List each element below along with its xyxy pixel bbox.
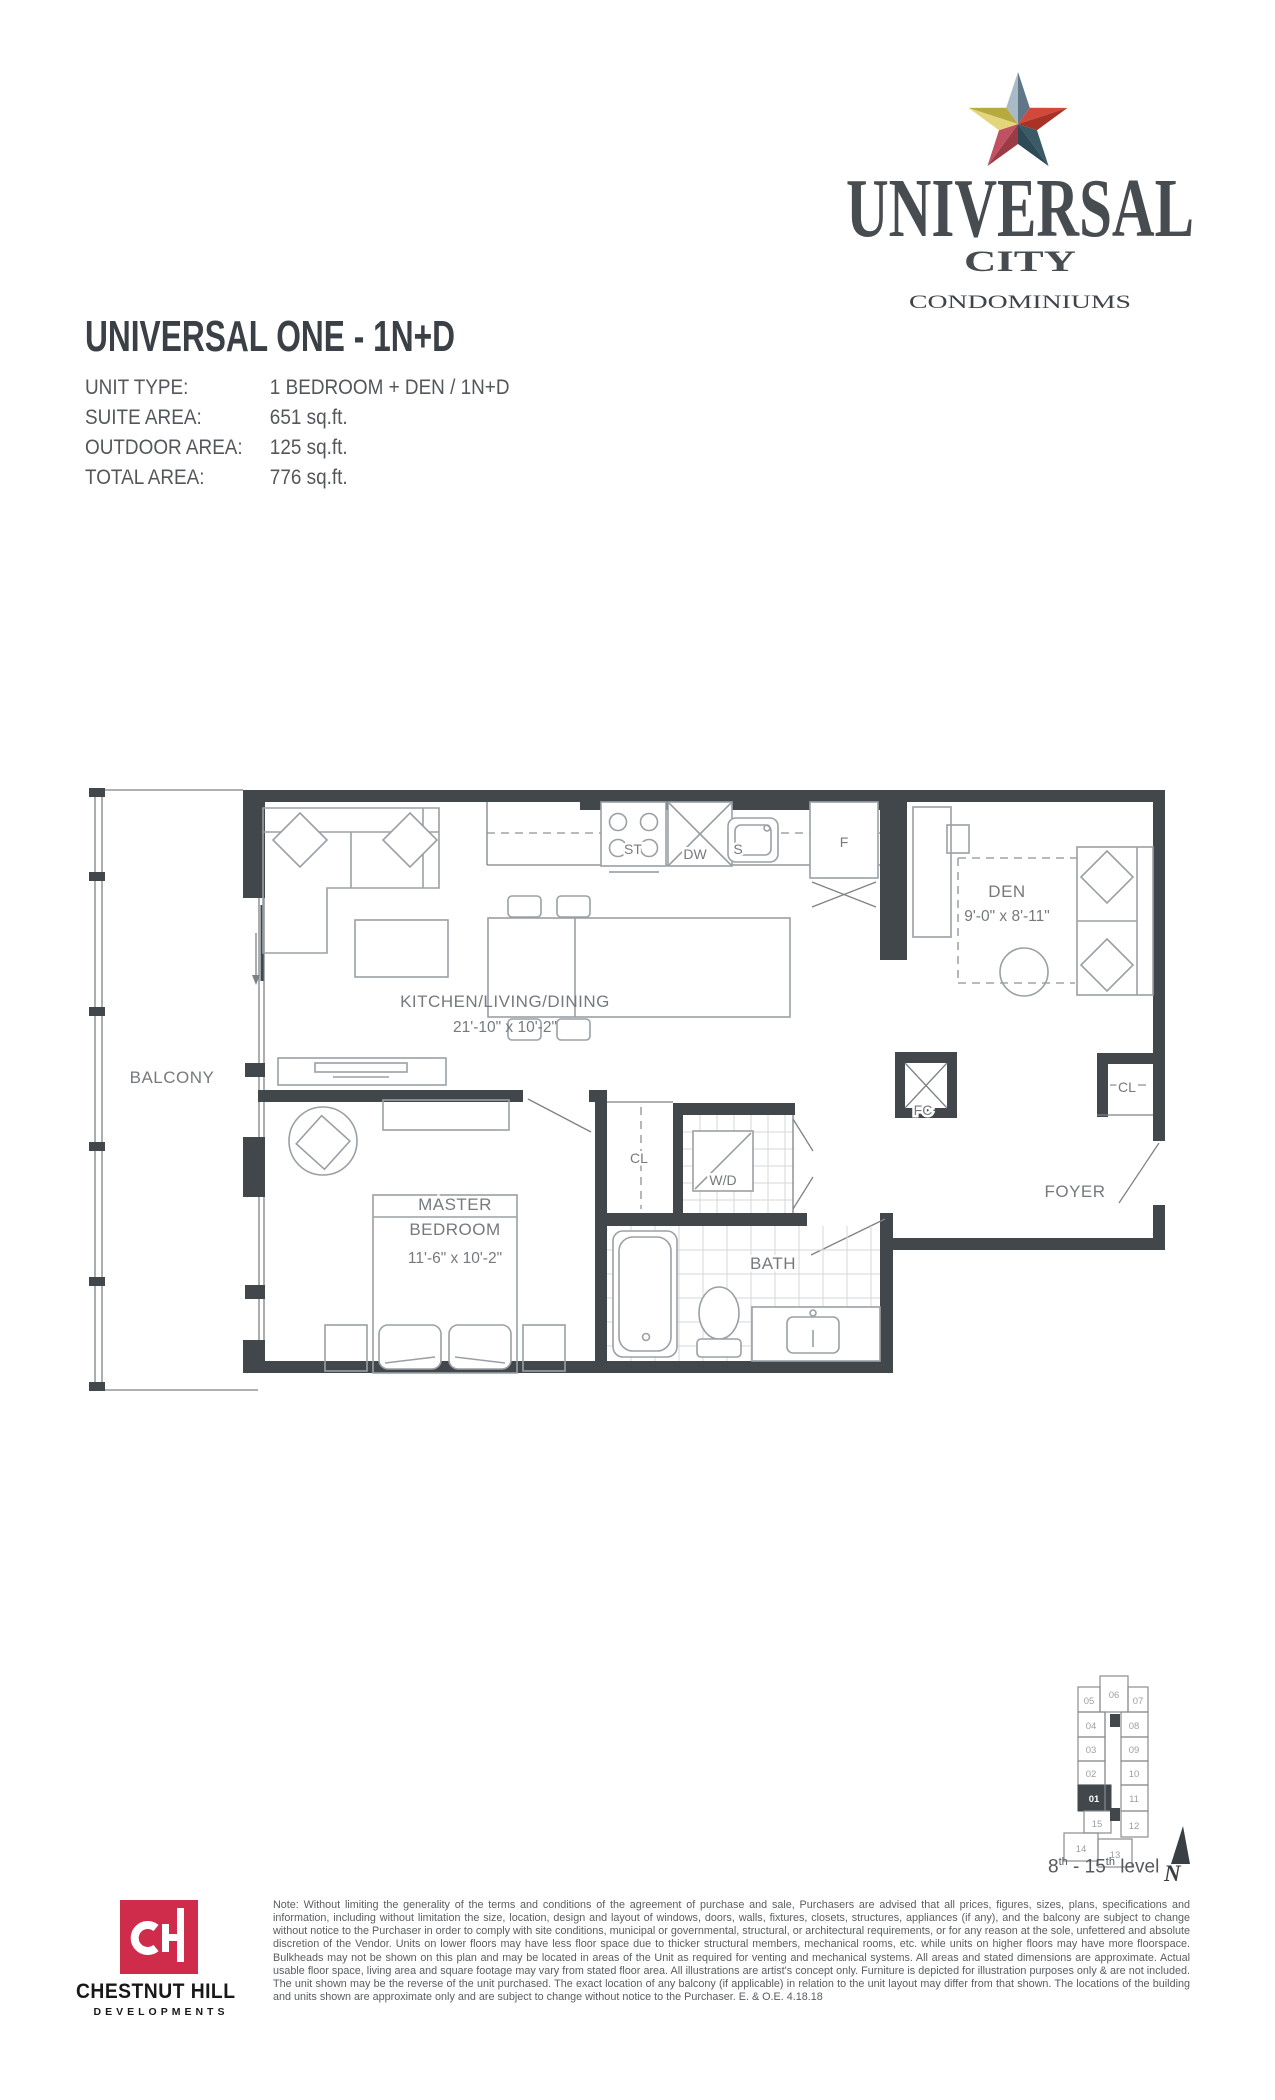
unit-type-label: UNIT TYPE: bbox=[85, 372, 270, 402]
keyplan-unit: 07 bbox=[1133, 1696, 1144, 1707]
laundry-label: W/D bbox=[709, 1172, 736, 1188]
unit-info-row: TOTAL AREA: 776 sq.ft. bbox=[85, 462, 510, 492]
logo-city: CITY bbox=[964, 245, 1076, 278]
total-area-label: TOTAL AREA: bbox=[85, 462, 270, 492]
developer-name: CHESTNUT HILL bbox=[76, 1980, 232, 2004]
balcony-railing bbox=[89, 788, 258, 1391]
fridge-label: F bbox=[840, 834, 849, 850]
room-dims-master: 11'-6" x 10'-2" bbox=[408, 1250, 502, 1267]
keyplan-unit: 09 bbox=[1129, 1745, 1140, 1756]
unit-info-row: OUTDOOR AREA: 125 sq.ft. bbox=[85, 432, 510, 462]
den-desk-icon bbox=[913, 807, 951, 937]
sectional-sofa-icon bbox=[263, 808, 439, 953]
toilet-icon bbox=[697, 1287, 741, 1357]
fridge-icon bbox=[810, 802, 878, 907]
logo-wordmark: UNIVERSAL bbox=[846, 162, 1194, 255]
bathtub-icon bbox=[613, 1231, 677, 1357]
room-label-foyer: FOYER bbox=[1044, 1182, 1105, 1201]
closet-label-foyer: CL bbox=[1118, 1079, 1136, 1095]
keyplan-unit: 12 bbox=[1129, 1821, 1140, 1832]
fancoil-label: FC bbox=[914, 1102, 933, 1118]
sink-label: S bbox=[733, 841, 742, 857]
caption-text: 8 bbox=[1048, 1856, 1059, 1877]
suite-area-value: 651 sq.ft. bbox=[270, 402, 510, 432]
armchair-icon bbox=[289, 1107, 357, 1175]
kitchen-fixtures: ST DW S F bbox=[487, 802, 880, 907]
page-title: UNIVERSAL ONE - 1N+D bbox=[85, 312, 455, 362]
outdoor-area-value: 125 sq.ft. bbox=[270, 432, 510, 462]
unit-info-table: UNIT TYPE: 1 BEDROOM + DEN / 1N+D SUITE … bbox=[85, 372, 510, 492]
star-icon bbox=[969, 72, 1068, 166]
keyplan-unit: 08 bbox=[1129, 1721, 1140, 1732]
chestnut-hill-logo-icon bbox=[120, 1900, 198, 1974]
stove-icon bbox=[601, 802, 666, 872]
keyplan-unit: 04 bbox=[1086, 1721, 1097, 1732]
unit-info-row: SUITE AREA: 651 sq.ft. bbox=[85, 402, 510, 432]
room-dims-den: 9'-0" x 8'-11" bbox=[964, 908, 1050, 925]
walls bbox=[243, 790, 1165, 1373]
north-label: N bbox=[1163, 1861, 1182, 1884]
caption-sup: th bbox=[1059, 1856, 1068, 1868]
room-label-master-2: BEDROOM bbox=[409, 1220, 500, 1239]
coffee-table-icon bbox=[355, 920, 448, 977]
room-label-den: DEN bbox=[988, 882, 1025, 901]
logo-tagline: CONDOMINIUMS bbox=[909, 292, 1131, 313]
den-sofa-icon bbox=[1077, 847, 1153, 995]
floorplan-drawing: ST DW S F bbox=[75, 585, 1175, 1395]
unit-type-value: 1 BEDROOM + DEN / 1N+D bbox=[270, 372, 510, 402]
den-table-icon bbox=[1000, 948, 1048, 996]
keyplan-unit: 06 bbox=[1109, 1690, 1120, 1701]
vanity-icon bbox=[752, 1307, 880, 1361]
suite-area-label: SUITE AREA: bbox=[85, 402, 270, 432]
stove-label: ST bbox=[624, 841, 642, 857]
keyplan-caption: 8th - 15th level bbox=[1048, 1856, 1228, 1878]
room-label-balcony: BALCONY bbox=[130, 1068, 215, 1087]
universal-city-logo: UNIVERSAL CITY CONDOMINIUMS bbox=[840, 58, 1200, 320]
keyplan-unit: 10 bbox=[1129, 1769, 1140, 1780]
room-label-kitchen: KITCHEN/LIVING/DINING bbox=[400, 992, 610, 1011]
floorplan-brochure-page: { "logo": { "name": "UNIVERSAL", "city":… bbox=[0, 0, 1275, 2100]
dresser-icon bbox=[383, 1100, 509, 1130]
caption-sup: th bbox=[1106, 1856, 1115, 1868]
den-area bbox=[913, 807, 1153, 996]
outdoor-area-label: OUTDOOR AREA: bbox=[85, 432, 270, 462]
disclaimer-text: Note: Without limiting the generality of… bbox=[273, 1899, 1190, 2005]
caption-text: - 15 bbox=[1068, 1856, 1106, 1877]
building-keyplan: 05 06 07 04 08 03 09 02 10 01 11 15 12 1… bbox=[1040, 1640, 1240, 1870]
keyplan-unit: 05 bbox=[1084, 1696, 1095, 1707]
caption-text: level bbox=[1115, 1856, 1159, 1877]
keyplan-unit-highlighted: 01 bbox=[1089, 1794, 1100, 1805]
doors bbox=[252, 905, 1159, 1255]
tv-console-icon bbox=[278, 1058, 446, 1085]
keyplan-unit: 14 bbox=[1076, 1844, 1087, 1855]
keyplan-unit: 11 bbox=[1129, 1794, 1139, 1805]
keyplan-unit-numbers: 05 06 07 04 08 03 09 02 10 01 11 15 12 1… bbox=[1076, 1690, 1144, 1861]
keyplan-unit: 02 bbox=[1086, 1769, 1097, 1780]
unit-info-row: UNIT TYPE: 1 BEDROOM + DEN / 1N+D bbox=[85, 372, 510, 402]
dishwasher-label: DW bbox=[683, 846, 707, 862]
room-label-bath: BATH bbox=[750, 1254, 796, 1273]
room-label-master-1: MASTER bbox=[418, 1195, 492, 1214]
developer-division: DEVELOPMENTS bbox=[76, 2006, 246, 2018]
keyplan-unit: 03 bbox=[1086, 1745, 1097, 1756]
closet-label-hall: CL bbox=[630, 1150, 648, 1166]
room-dims-kitchen: 21'-10" x 10'-2" bbox=[453, 1019, 557, 1036]
north-arrow-icon: N bbox=[1162, 1824, 1198, 1884]
keyplan-unit: 15 bbox=[1092, 1819, 1103, 1830]
total-area-value: 776 sq.ft. bbox=[270, 462, 510, 492]
